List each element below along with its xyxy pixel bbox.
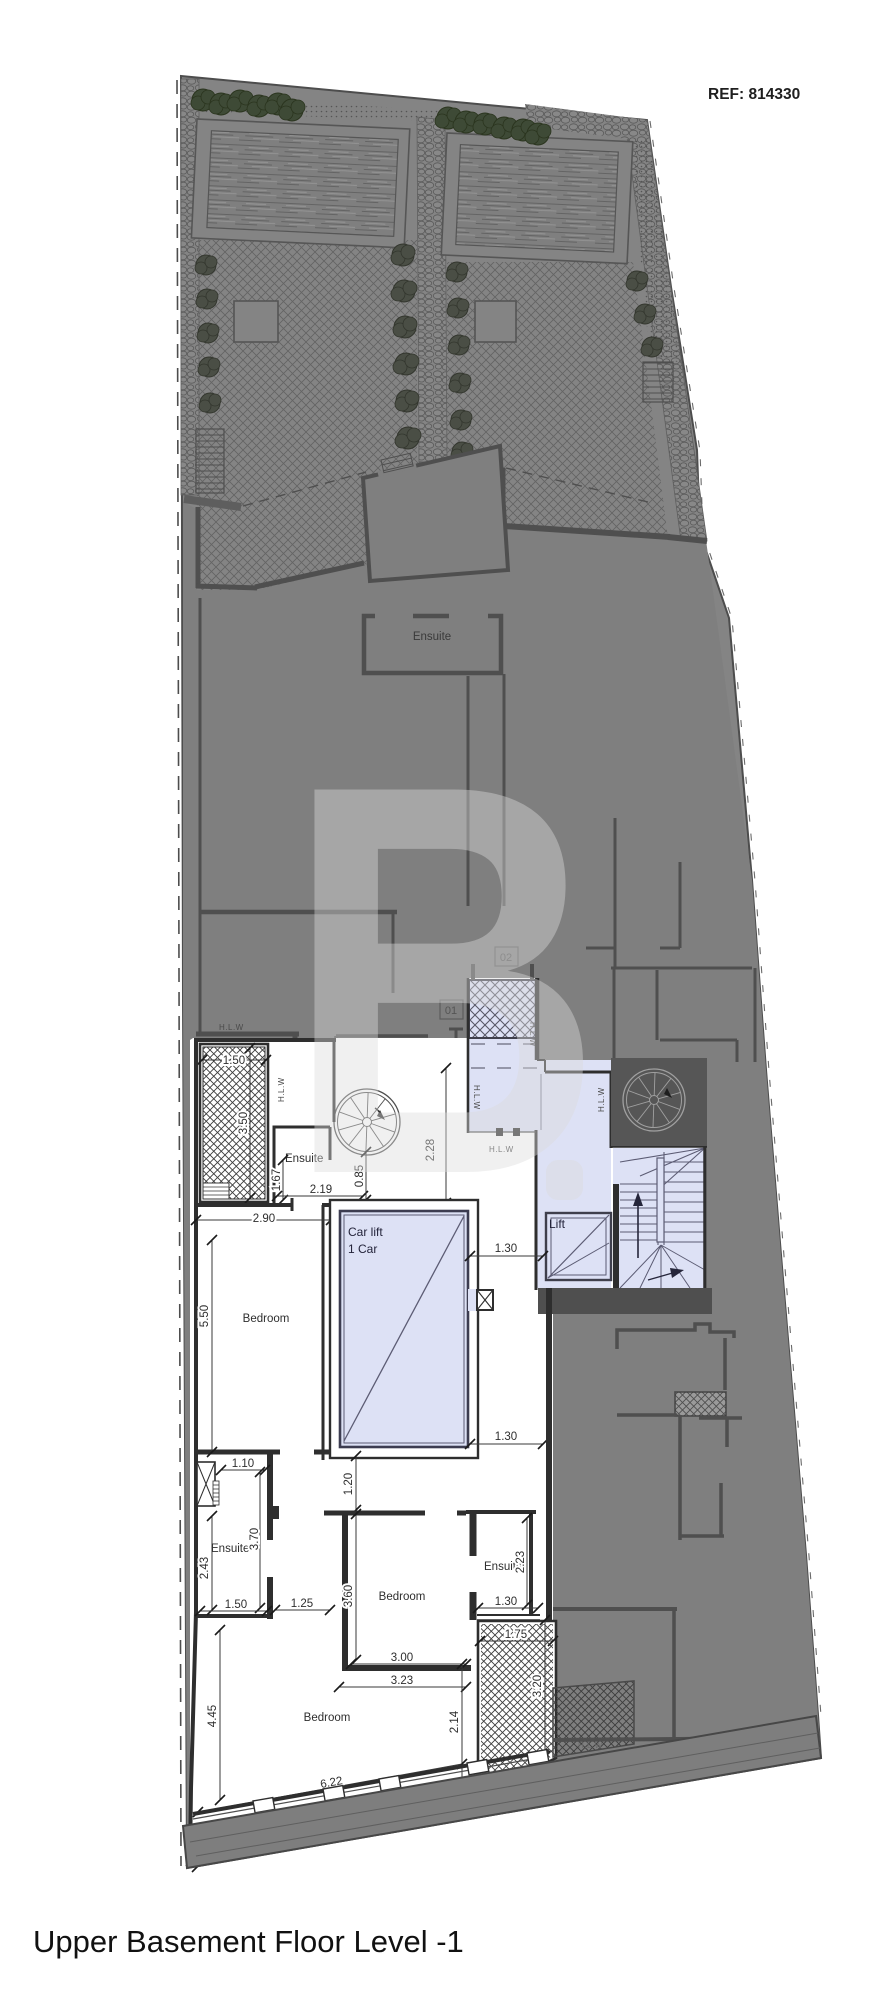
svg-text:1.30: 1.30 (495, 1596, 517, 1608)
svg-text:Bedroom: Bedroom (243, 1313, 290, 1325)
svg-text:3.70: 3.70 (249, 1528, 261, 1550)
svg-text:3.20: 3.20 (532, 1675, 544, 1697)
svg-text:1.67: 1.67 (271, 1169, 283, 1191)
svg-text:3.60: 3.60 (343, 1585, 355, 1607)
svg-text:Ensuite: Ensuite (211, 1543, 249, 1555)
svg-text:1.75: 1.75 (505, 1629, 527, 1641)
svg-text:Bedroom: Bedroom (304, 1712, 351, 1724)
svg-text:1.10: 1.10 (232, 1458, 254, 1470)
svg-text:Ensuite: Ensuite (413, 631, 451, 643)
svg-text:2.14: 2.14 (449, 1710, 461, 1733)
svg-text:H.L.W: H.L.W (219, 1023, 244, 1032)
svg-text:Bedroom: Bedroom (379, 1591, 426, 1603)
svg-text:1.30: 1.30 (495, 1431, 517, 1443)
svg-text:4.45: 4.45 (207, 1705, 219, 1727)
svg-text:1.20: 1.20 (343, 1473, 355, 1495)
svg-text:2.43: 2.43 (199, 1557, 211, 1579)
svg-text:REF: 814330: REF: 814330 (708, 86, 800, 103)
svg-text:Upper Basement Floor Level -1: Upper Basement Floor Level -1 (33, 1924, 464, 1959)
svg-text:2.23: 2.23 (515, 1551, 527, 1573)
svg-text:1.50: 1.50 (225, 1599, 247, 1611)
svg-text:1.25: 1.25 (291, 1598, 313, 1610)
svg-text:3.50: 3.50 (238, 1112, 250, 1134)
svg-text:5.50: 5.50 (199, 1305, 211, 1327)
svg-text:3.23: 3.23 (391, 1675, 413, 1687)
svg-text:1.50: 1.50 (223, 1055, 245, 1067)
svg-text:2.90: 2.90 (253, 1213, 275, 1225)
svg-text:3.00: 3.00 (391, 1652, 413, 1664)
svg-text:H.L.W: H.L.W (578, 1741, 603, 1750)
